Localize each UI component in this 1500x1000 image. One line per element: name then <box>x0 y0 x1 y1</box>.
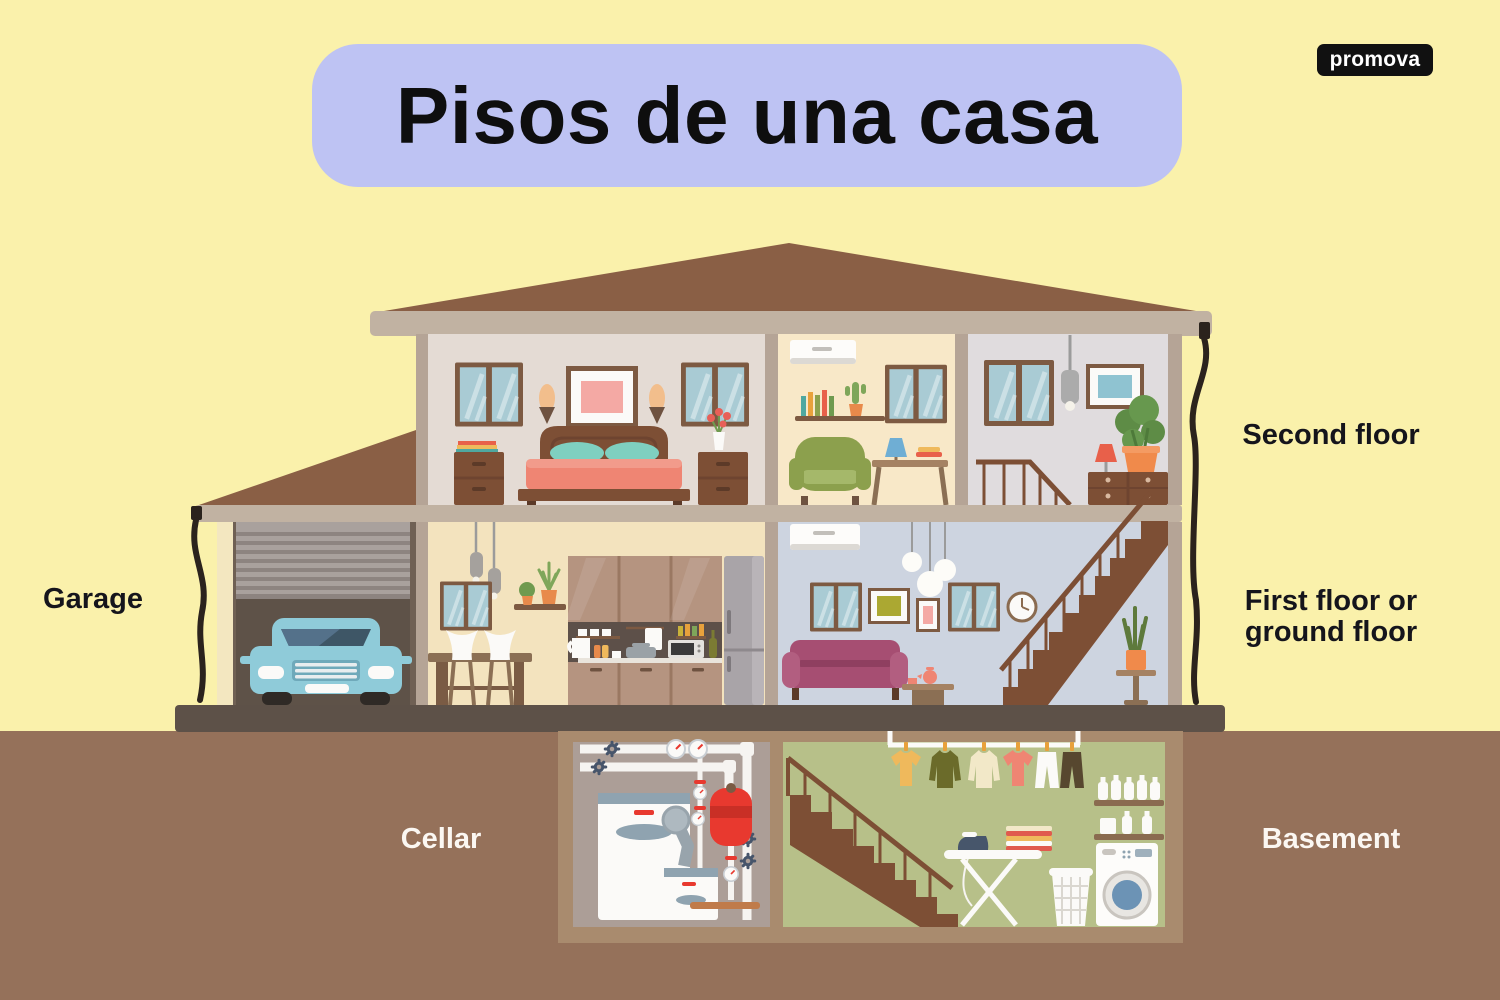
stair-room-window <box>984 360 1054 426</box>
infographic-canvas: Pisos de una casa promova Garage Second … <box>0 0 1500 1000</box>
fridge <box>724 556 764 705</box>
main-roof <box>372 243 1208 313</box>
garage-roof <box>196 430 416 506</box>
washing-machine <box>1096 843 1158 926</box>
garage <box>217 522 416 705</box>
bedroom-picture <box>566 366 638 428</box>
nightstand-left <box>454 441 504 505</box>
bedroom-window-right <box>681 362 749 426</box>
label-basement: Basement <box>1231 824 1431 855</box>
bedroom-window-left <box>455 362 523 426</box>
pressure-gauge <box>692 813 705 826</box>
promova-logo-text: promova <box>1330 48 1421 72</box>
main-roof-eave <box>370 311 1212 336</box>
second-floor-slab <box>196 505 1182 522</box>
cellar-room <box>580 740 760 920</box>
lounge-window <box>885 365 947 423</box>
living-window-left <box>810 582 862 631</box>
garage-front-wall <box>217 522 233 705</box>
label-garage: Garage <box>13 584 173 615</box>
microwave <box>668 640 704 658</box>
boiler-small <box>664 868 718 920</box>
promova-logo: promova <box>1317 44 1433 76</box>
pressure-gauge <box>694 787 707 800</box>
label-first-floor: First floor or ground floor <box>1206 586 1456 649</box>
pressure-gauge <box>724 867 738 881</box>
pressure-gauge <box>667 740 685 758</box>
air-conditioner-upstairs <box>790 340 856 364</box>
pressure-gauge <box>689 740 707 758</box>
dresser <box>1088 472 1168 505</box>
kitchen-cabinets <box>566 556 722 705</box>
ground-slab <box>175 705 1225 732</box>
living-picture-pink <box>916 598 940 632</box>
label-second-floor: Second floor <box>1206 420 1456 451</box>
title-banner: Pisos de una casa <box>312 44 1182 187</box>
copper-pipe <box>690 902 760 909</box>
page-title: Pisos de una casa <box>396 70 1098 162</box>
folded-laundry <box>1006 826 1052 851</box>
wall-clock <box>1008 593 1036 621</box>
bed <box>518 426 690 506</box>
label-first-floor-line2: ground floor <box>1206 617 1456 648</box>
living-picture-olive <box>868 588 910 624</box>
kitchen-window <box>440 581 492 630</box>
air-conditioner-living <box>790 524 860 550</box>
label-cellar: Cellar <box>361 824 521 855</box>
label-first-floor-line1: First floor or <box>1206 586 1456 617</box>
downpipe-left <box>191 506 204 700</box>
living-window-right <box>948 582 1000 631</box>
